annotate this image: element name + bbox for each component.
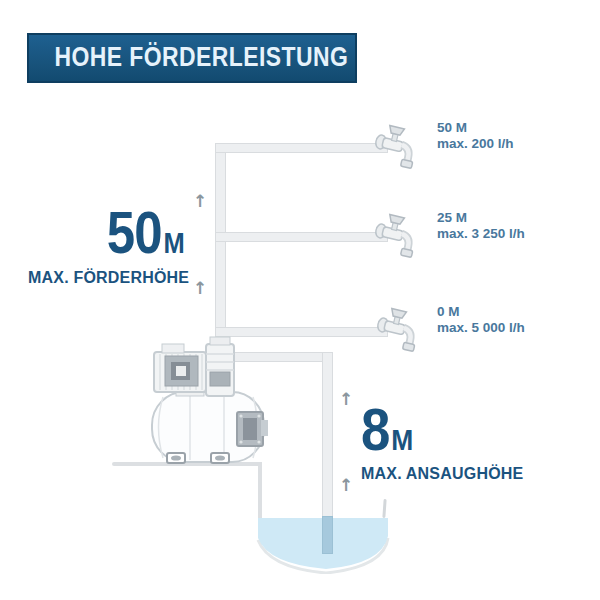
outlet-height: 50 M [437,120,514,136]
up-arrow-icon: ↑ [193,193,207,210]
faucet-icon-middle [369,208,427,266]
suction-head-unit: M [391,423,413,456]
outlet-label-top: 50 M max. 200 l/h [437,120,514,152]
up-arrow-icon: ↑ [339,391,353,408]
faucet-icon-top [369,119,427,177]
banner-title: HOHE FÖRDERLEISTUNG [29,35,348,79]
outlet-height: 0 M [437,304,525,320]
outlet-flow: max. 200 l/h [437,136,514,152]
delivery-head-value: 50M [107,203,185,263]
suction-pipe-underwater [322,516,333,554]
main-riser-pipe [215,143,226,352]
infographic-canvas: HOHE FÖRDERLEISTUNG [0,0,600,600]
outlet-flow: max. 3 250 l/h [437,226,525,242]
pump-illustration [110,328,270,468]
suction-head-caption: MAX. ANSAUGHÖHE [361,465,531,483]
outlet-height: 25 M [437,210,525,226]
title-banner: HOHE FÖRDERLEISTUNG [27,33,357,83]
suction-pipe-vertical [322,352,333,518]
up-arrow-icon: ↑ [193,280,207,297]
outlet-flow: max. 5 000 l/h [437,320,525,336]
delivery-head-caption: MAX. FÖRDERHÖHE [28,269,185,287]
delivery-head-number: 50 [107,199,162,266]
suction-head-value: 8M [361,400,413,460]
branch-pipe-middle [215,232,388,242]
suction-head-block: 8M MAX. ANSAUGHÖHE [361,400,531,483]
outlet-label-middle: 25 M max. 3 250 l/h [437,210,525,242]
up-arrow-icon: ↑ [339,477,353,494]
suction-head-number: 8 [361,396,389,463]
delivery-head-unit: M [164,226,185,259]
faucet-icon-bottom [371,302,429,360]
outlet-label-bottom: 0 M max. 5 000 l/h [437,304,525,336]
delivery-head-block: 50M MAX. FÖRDERHÖHE [28,203,185,287]
branch-pipe-top [215,143,388,153]
